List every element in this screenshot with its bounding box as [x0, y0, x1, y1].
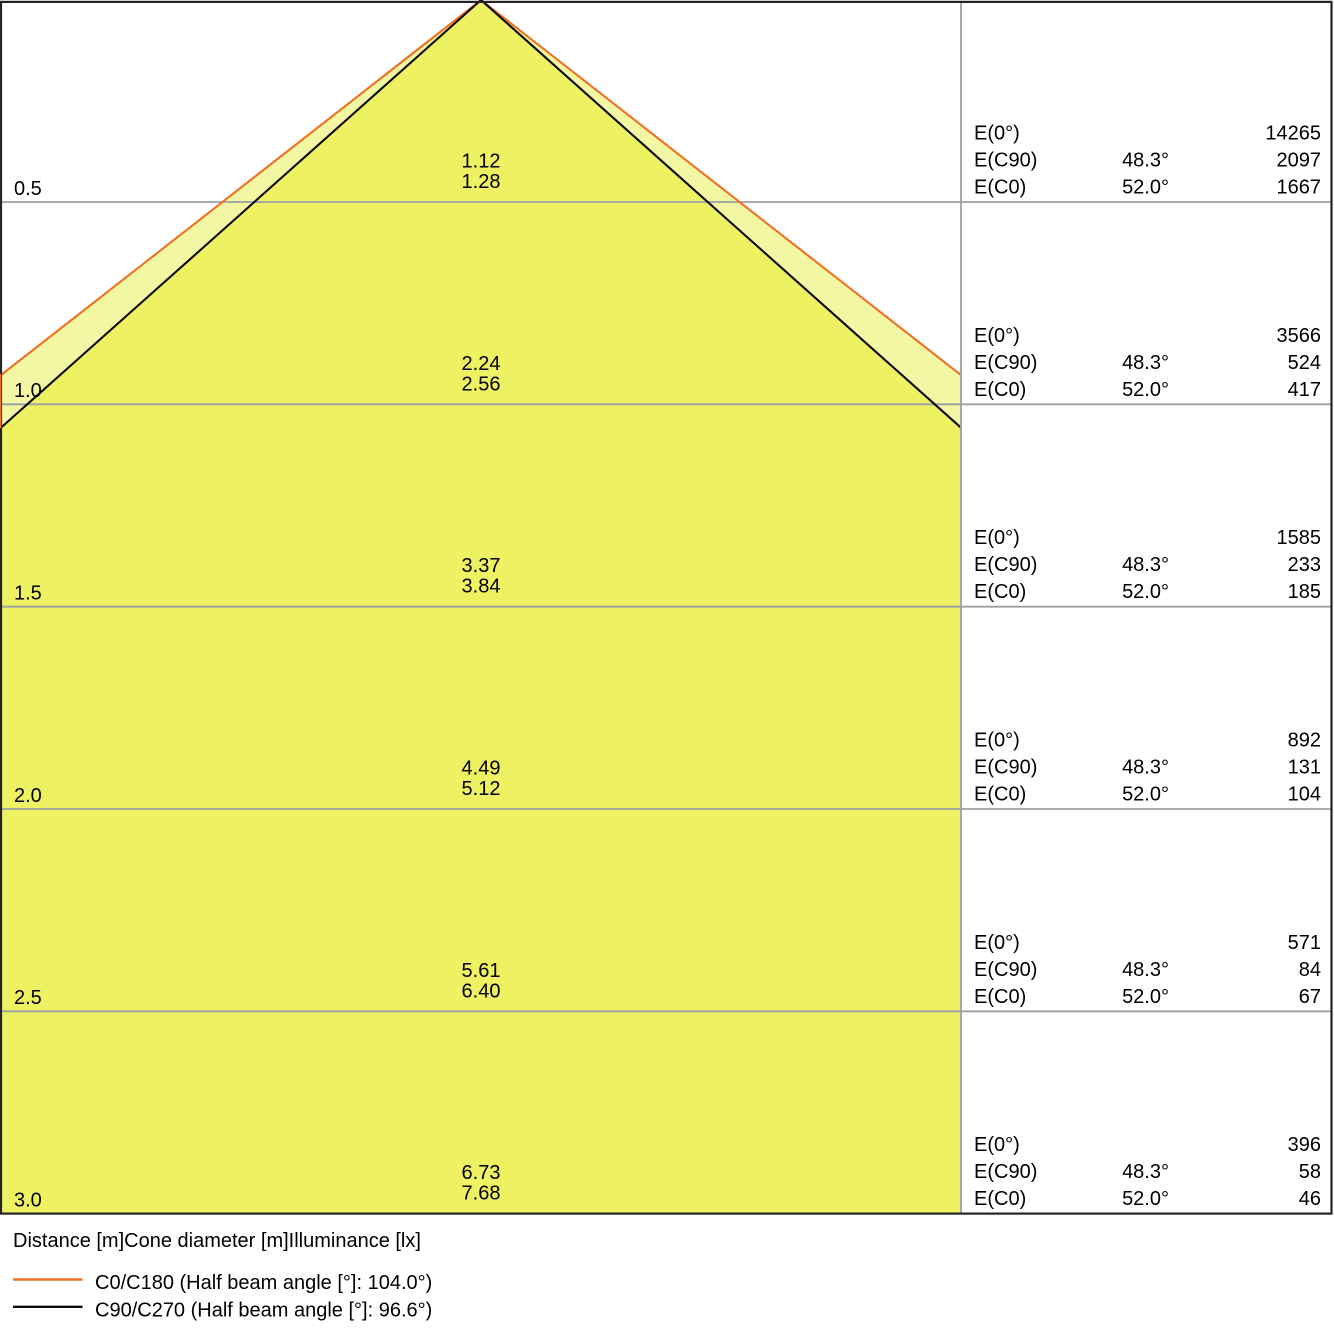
svg-text:E(0°): E(0°) — [974, 527, 1020, 549]
svg-text:E(C0): E(C0) — [974, 986, 1026, 1008]
svg-text:14265: 14265 — [1265, 123, 1321, 145]
svg-text:0.5: 0.5 — [14, 178, 42, 200]
svg-text:4.49: 4.49 — [462, 758, 501, 780]
svg-text:52.0°: 52.0° — [1122, 986, 1169, 1008]
svg-text:Distance [m]Cone diameter [m]I: Distance [m]Cone diameter [m]Illuminance… — [13, 1230, 421, 1252]
svg-text:2097: 2097 — [1277, 150, 1322, 172]
svg-text:E(C0): E(C0) — [974, 581, 1026, 603]
svg-text:C0/C180 (Half beam angle [°]:: C0/C180 (Half beam angle [°]: 104.0°) — [95, 1272, 432, 1294]
svg-text:2.56: 2.56 — [462, 373, 501, 395]
svg-text:52.0°: 52.0° — [1122, 784, 1169, 806]
svg-text:185: 185 — [1288, 581, 1321, 603]
svg-text:52.0°: 52.0° — [1122, 379, 1169, 401]
svg-text:6.73: 6.73 — [462, 1162, 501, 1184]
svg-text:5.61: 5.61 — [462, 960, 501, 982]
svg-text:2.0: 2.0 — [14, 785, 42, 807]
svg-text:3566: 3566 — [1277, 325, 1322, 347]
svg-text:E(C0): E(C0) — [974, 177, 1026, 199]
svg-text:48.3°: 48.3° — [1122, 150, 1169, 172]
svg-text:52.0°: 52.0° — [1122, 581, 1169, 603]
svg-text:417: 417 — [1288, 379, 1321, 401]
svg-text:67: 67 — [1299, 986, 1321, 1008]
svg-text:524: 524 — [1288, 352, 1321, 374]
svg-text:3.37: 3.37 — [462, 555, 501, 577]
svg-text:E(0°): E(0°) — [974, 932, 1020, 954]
svg-text:3.0: 3.0 — [14, 1189, 42, 1211]
svg-text:233: 233 — [1288, 554, 1321, 576]
svg-text:E(C90): E(C90) — [974, 352, 1037, 374]
svg-text:1.12: 1.12 — [462, 151, 501, 173]
svg-text:E(C90): E(C90) — [974, 150, 1037, 172]
svg-text:52.0°: 52.0° — [1122, 177, 1169, 199]
svg-text:E(C0): E(C0) — [974, 379, 1026, 401]
svg-text:1667: 1667 — [1277, 177, 1322, 199]
svg-text:E(C0): E(C0) — [974, 784, 1026, 806]
svg-text:48.3°: 48.3° — [1122, 352, 1169, 374]
svg-text:1.28: 1.28 — [462, 171, 501, 193]
svg-text:48.3°: 48.3° — [1122, 554, 1169, 576]
svg-text:892: 892 — [1288, 730, 1321, 752]
svg-text:6.40: 6.40 — [462, 980, 501, 1002]
svg-text:E(C90): E(C90) — [974, 1161, 1037, 1183]
svg-text:2.5: 2.5 — [14, 987, 42, 1009]
svg-text:52.0°: 52.0° — [1122, 1188, 1169, 1210]
svg-text:7.68: 7.68 — [462, 1183, 501, 1205]
svg-text:E(C90): E(C90) — [974, 554, 1037, 576]
svg-text:E(0°): E(0°) — [974, 1134, 1020, 1156]
svg-text:3.84: 3.84 — [462, 576, 501, 598]
svg-text:1.0: 1.0 — [14, 380, 42, 402]
svg-text:E(0°): E(0°) — [974, 325, 1020, 347]
svg-text:571: 571 — [1288, 932, 1321, 954]
svg-text:5.12: 5.12 — [462, 778, 501, 800]
svg-text:C90/C270 (Half beam angle [°]:: C90/C270 (Half beam angle [°]: 96.6°) — [95, 1299, 432, 1321]
svg-text:1.5: 1.5 — [14, 583, 42, 605]
svg-text:48.3°: 48.3° — [1122, 757, 1169, 779]
svg-text:48.3°: 48.3° — [1122, 1161, 1169, 1183]
svg-text:E(C90): E(C90) — [974, 959, 1037, 981]
svg-text:2.24: 2.24 — [462, 353, 501, 375]
svg-text:396: 396 — [1288, 1134, 1321, 1156]
svg-text:E(0°): E(0°) — [974, 123, 1020, 145]
svg-text:104: 104 — [1288, 784, 1321, 806]
svg-text:E(C0): E(C0) — [974, 1188, 1026, 1210]
svg-text:48.3°: 48.3° — [1122, 959, 1169, 981]
svg-text:E(C90): E(C90) — [974, 757, 1037, 779]
svg-text:E(0°): E(0°) — [974, 730, 1020, 752]
svg-text:1585: 1585 — [1277, 527, 1322, 549]
svg-text:58: 58 — [1299, 1161, 1321, 1183]
svg-text:46: 46 — [1299, 1188, 1321, 1210]
svg-text:131: 131 — [1288, 757, 1321, 779]
svg-text:84: 84 — [1299, 959, 1321, 981]
